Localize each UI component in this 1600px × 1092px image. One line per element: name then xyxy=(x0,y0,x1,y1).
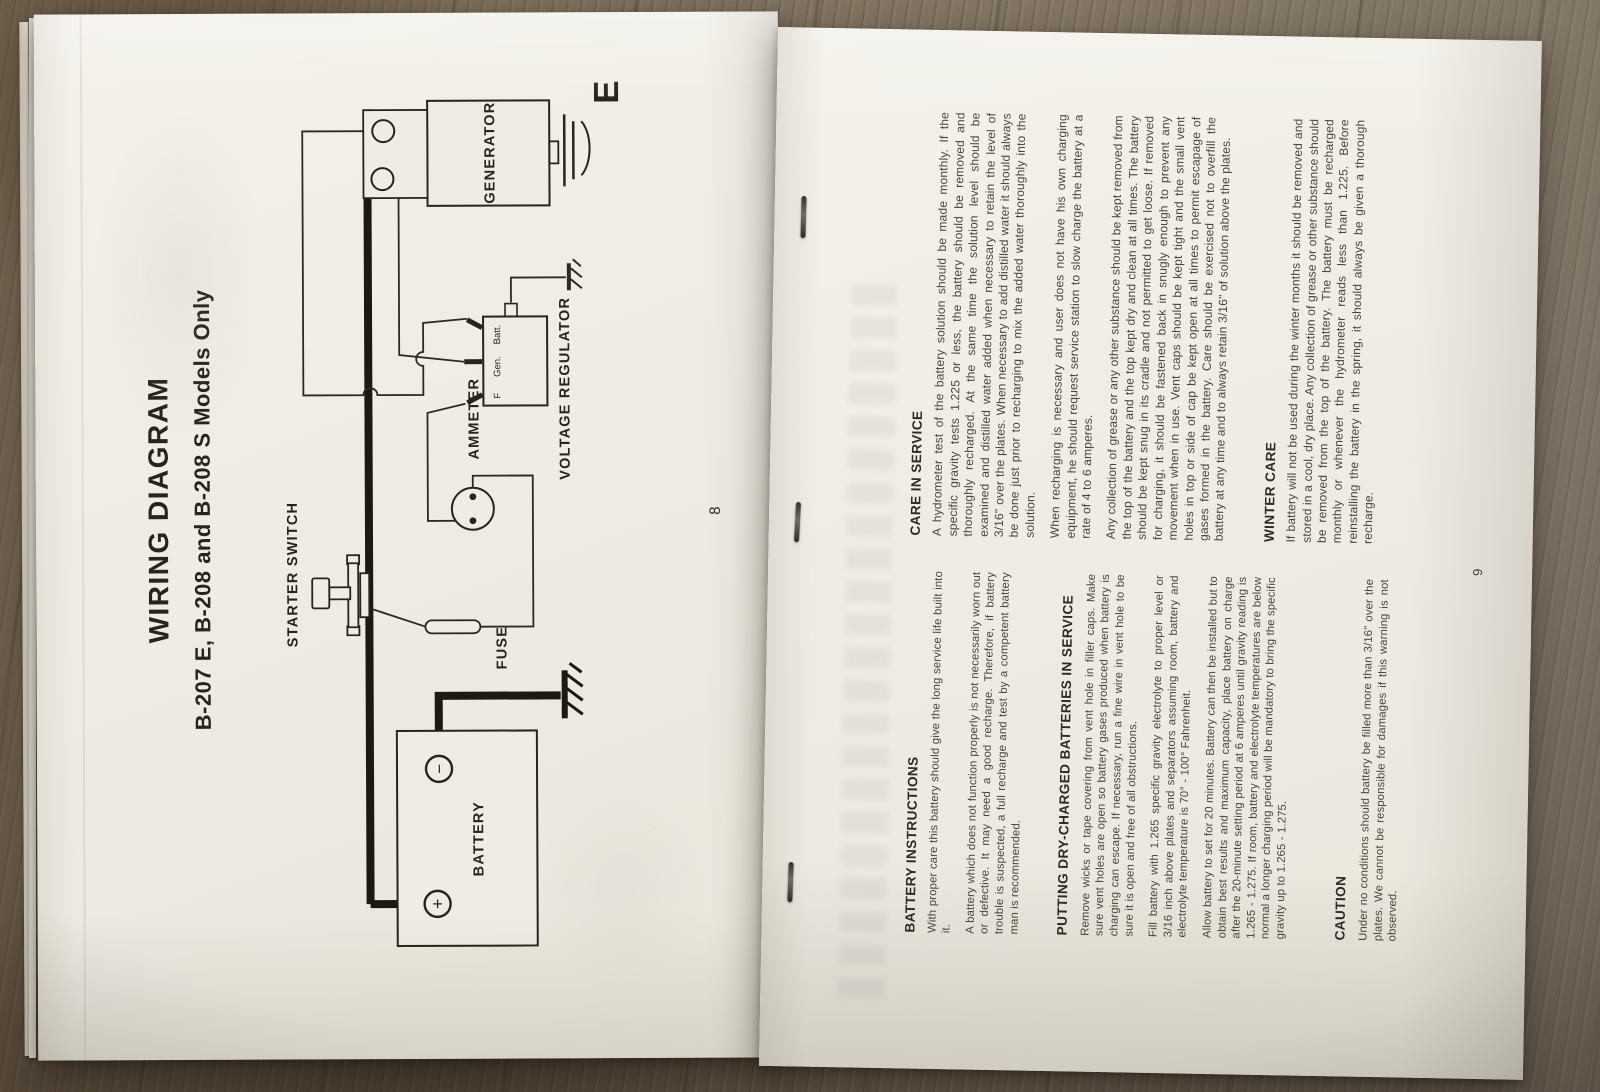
generator-label: GENERATOR xyxy=(482,102,498,204)
manual-page-9: BATTERY INSTRUCTIONS With proper care th… xyxy=(759,27,1542,1080)
paragraph: When recharging is necessary and user do… xyxy=(1048,114,1102,539)
manual-page-8: WIRING DIAGRAM B-207 E, B-208 and B-208 … xyxy=(34,11,783,1060)
terminal-f-label: F xyxy=(492,392,503,398)
page-9-rotated-content: BATTERY INSTRUCTIONS With proper care th… xyxy=(759,27,1542,1080)
generator-symbol: GENERATOR xyxy=(363,100,590,206)
regulator-ground-symbol xyxy=(569,259,582,290)
page-number-9: 9 xyxy=(1470,569,1485,577)
diagram-title: WIRING DIAGRAM xyxy=(142,377,174,644)
fuse-symbol xyxy=(425,620,480,633)
right-text-column: CARE IN SERVICE A hydrometer test of the… xyxy=(908,112,1384,545)
terminal-batt-label: Batt. xyxy=(492,325,503,345)
paragraph: Under no conditions should battery be fi… xyxy=(1356,579,1406,942)
page-8-rotated-content: WIRING DIAGRAM B-207 E, B-208 and B-208 … xyxy=(34,11,783,1060)
starter-switch-symbol xyxy=(312,555,369,635)
battery-label: BATTERY xyxy=(471,801,487,876)
bleed-through-text-smudge xyxy=(838,277,897,998)
winter-care-heading: WINTER CARE xyxy=(1261,118,1284,542)
paragraph: If battery will not be used during the w… xyxy=(1284,118,1384,544)
photo-of-open-manual: WIRING DIAGRAM B-207 E, B-208 and B-208 … xyxy=(0,0,1600,1092)
diagram-subtitle: B-207 E, B-208 and B-208 S Models Only xyxy=(189,289,216,730)
paragraph: With proper care this battery should giv… xyxy=(925,571,961,933)
terminal-gen-label: Gen. xyxy=(492,356,503,377)
battery-instructions-heading: BATTERY INSTRUCTIONS xyxy=(903,571,924,933)
starter-switch-label: STARTER SWITCH xyxy=(285,502,302,647)
paragraph: Fill battery with 1.265 specific gravity… xyxy=(1147,575,1197,938)
voltage-regulator-label: VOLTAGE REGULATOR xyxy=(557,297,574,480)
caution-heading: CAUTION xyxy=(1334,578,1355,940)
paragraph: Remove wicks or tape covering from vent … xyxy=(1078,574,1143,937)
battery-negative-terminal: − xyxy=(430,764,449,774)
wiring-diagram: WIRING DIAGRAM B-207 E, B-208 and B-208 … xyxy=(34,11,783,1060)
left-text-column: BATTERY INSTRUCTIONS With proper care th… xyxy=(903,571,1406,942)
fuse-label: FUSE xyxy=(494,626,510,670)
ammeter-label: AMMETER xyxy=(466,378,482,460)
paragraph: A battery which does not function proper… xyxy=(963,572,1028,935)
battery-symbol: − + BATTERY xyxy=(397,730,538,946)
page-number-8: 8 xyxy=(707,506,724,514)
paragraph: Allow battery to set for 20 minutes. Bat… xyxy=(1200,576,1294,940)
paragraph: A hydrometer test of the battery solutio… xyxy=(930,112,1046,538)
paragraph: Any collection of grease or any other su… xyxy=(1104,115,1235,541)
battery-positive-terminal: + xyxy=(428,899,448,910)
corner-letter: E xyxy=(587,80,626,104)
care-in-service-heading: CARE IN SERVICE xyxy=(908,112,931,536)
battery-ground-symbol xyxy=(565,663,583,718)
dry-charged-heading: PUTTING DRY-CHARGED BATTERIES IN SERVICE xyxy=(1056,573,1077,935)
